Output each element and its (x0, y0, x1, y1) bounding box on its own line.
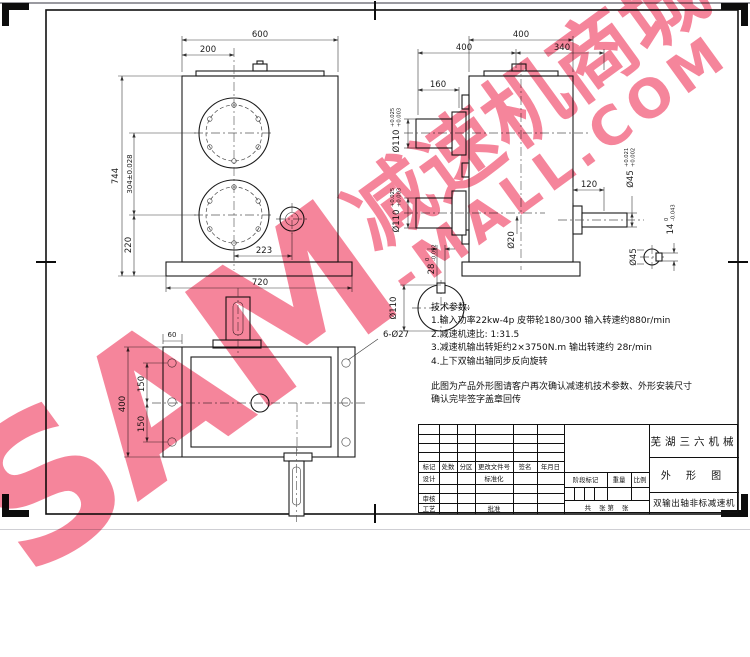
front-view: 600 200 744 304±0.028 220 223 720 (111, 30, 352, 292)
dim-label-sv-upper-bore: Ø110 (391, 130, 402, 153)
dim-label-sv-lower-bore-tol-lo: +0.003 (397, 188, 403, 207)
dim-label-fv-shaft-offset: 223 (256, 246, 272, 256)
tb-standardize: 标准化 (475, 472, 513, 484)
dim-label-fv-width: 600 (252, 30, 268, 40)
bottom-view: 60 400 150 150 6-Ø27 (118, 288, 409, 522)
tb-stage-mark: 阶段标记 (564, 472, 607, 487)
bottom-view-dimensions: 60 400 150 150 6-Ø27 (118, 329, 409, 457)
tb-header-doc: 更改文件号 (475, 461, 513, 472)
dim-label-sv-main-section-dia: Ø110 (388, 297, 399, 320)
dim-label-sv-center-hole: Ø20 (506, 231, 517, 249)
dim-label-sv-upper-bore-tol-hi: +0.025 (390, 108, 396, 127)
dim-label-fv-base-width: 720 (252, 278, 268, 288)
tb-design: 设计 (419, 472, 439, 484)
tb-scale: 比例 (631, 472, 649, 487)
dim-label-sv-out-shaft-length: 120 (581, 180, 597, 190)
dim-label-sv-main-key-tol-hi: 0 (425, 258, 431, 261)
notes-para-2: 确认完毕签字盖章回传 (431, 394, 731, 407)
tb-header-zone: 分区 (457, 461, 475, 472)
tb-header-mark: 标记 (419, 461, 439, 472)
dim-label-bv-flange-width: 60 (168, 331, 177, 339)
dim-label-bv-hole-pitch-b: 150 (137, 416, 147, 432)
tb-part-name: 双输出轴非标减速机 (649, 492, 739, 514)
dim-label-sv-out-key: 14 (666, 224, 676, 235)
notes-line-4: 4.上下双输出轴同步反向旋转 (431, 356, 731, 369)
title-block: 标记 处数 分区 更改文件号 签名 年月日 设计 标准化 审核 工艺 批准 阶段… (418, 424, 738, 513)
dim-label-bv-holes: 6-Ø27 (383, 329, 409, 340)
notes-line-2: 2.减速机速比: 1:31.5 (431, 329, 731, 342)
dim-label-sv-shaft-length: 160 (430, 80, 446, 90)
notes-line-1: 1.输入功率22kw-4p 皮带轮180/300 输入转速约880r/min (431, 315, 731, 328)
dim-label-sv-out-shaft-dia: Ø45 (625, 170, 636, 188)
side-view: 400 400 340 160 120 Ø110 +0.025 +0.003 (388, 30, 678, 336)
notes-line-3: 3.减速机输出转矩约2×3750N.m 输出转速约 28r/min (431, 342, 731, 355)
tb-header-count: 处数 (439, 461, 457, 472)
tb-company: 芜湖三六机械 (649, 425, 739, 457)
dim-label-sv-out-section-dia: Ø45 (628, 248, 639, 266)
dim-label-sv-left-span: 400 (456, 43, 472, 53)
dim-label-sv-out-shaft-tol-hi: +0.021 (624, 148, 630, 167)
dim-label-sv-top-width: 400 (513, 30, 529, 40)
tb-sheet: 共 张 第 张 (564, 500, 649, 514)
tb-header-sign: 签名 (513, 461, 537, 472)
tb-approve: 批准 (475, 503, 513, 514)
output-shaft-section-detail: 14 0 -0.043 Ø45 (628, 204, 678, 271)
dim-label-sv-out-key-tol-lo: -0.043 (671, 204, 677, 221)
dim-label-fv-hub-offset: 200 (200, 45, 216, 55)
tb-weight: 重量 (607, 472, 631, 487)
tb-header-date: 年月日 (537, 461, 564, 472)
notes-heading: 技术参数: (431, 302, 731, 315)
dim-label-sv-right-span: 340 (554, 43, 570, 53)
tb-drawing-title: 外 形 图 (649, 457, 739, 492)
dim-label-bv-plate-height: 400 (118, 396, 128, 412)
dim-label-sv-lower-bore-tol-hi: +0.025 (390, 188, 396, 207)
technical-notes: 技术参数: 1.输入功率22kw-4p 皮带轮180/300 输入转速约880r… (431, 302, 731, 408)
dim-label-fv-total-height: 744 (111, 168, 121, 184)
tb-process: 工艺 (419, 503, 439, 514)
notes-para-1: 此图为产品外形图请客户再次确认减速机技术参数、外形安装尺寸 (431, 381, 731, 394)
dim-label-sv-upper-bore-tol-lo: +0.003 (397, 108, 403, 127)
tb-review: 审核 (419, 493, 439, 503)
dim-label-fv-center-distance: 304±0.028 (126, 154, 134, 193)
dim-label-sv-main-key-tol-lo: -0.052 (432, 244, 438, 261)
dim-label-sv-main-key: 28 (427, 264, 437, 275)
dim-label-sv-out-shaft-tol-lo: +0.002 (631, 148, 637, 167)
dim-label-fv-base-offset: 220 (124, 237, 134, 253)
dim-label-bv-hole-pitch-a: 150 (137, 376, 147, 392)
engineering-drawing-sheet: { "watermark": { "brand": "SAM", "line1"… (0, 0, 750, 538)
dim-label-sv-lower-bore: Ø110 (391, 210, 402, 233)
dim-label-sv-out-key-tol-hi: 0 (664, 218, 670, 221)
